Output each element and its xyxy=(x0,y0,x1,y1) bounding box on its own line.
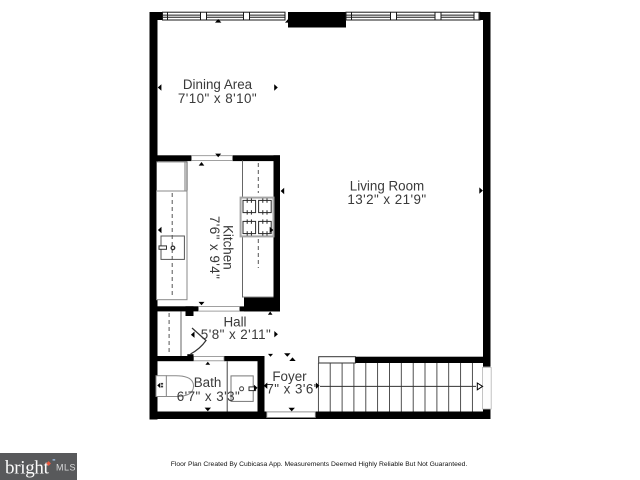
svg-text:bright: bright xyxy=(5,458,50,479)
svg-text:6'7" x 3'3": 6'7" x 3'3" xyxy=(177,389,241,404)
svg-text:Dining Area: Dining Area xyxy=(183,77,253,92)
svg-text:7'6" x 9'4": 7'6" x 9'4" xyxy=(207,216,222,280)
svg-text:Bath: Bath xyxy=(194,375,222,390)
svg-text:13'2" x 21'9": 13'2" x 21'9" xyxy=(347,192,426,207)
svg-text:Floor Plan Created By Cubicasa: Floor Plan Created By Cubicasa App. Meas… xyxy=(171,461,468,468)
svg-text:5'8" x 2'11": 5'8" x 2'11" xyxy=(201,327,271,342)
svg-text:MLS: MLS xyxy=(56,463,76,473)
svg-text:7" x 3'6": 7" x 3'6" xyxy=(266,381,319,396)
svg-text:7'10" x 8'10": 7'10" x 8'10" xyxy=(178,91,257,106)
